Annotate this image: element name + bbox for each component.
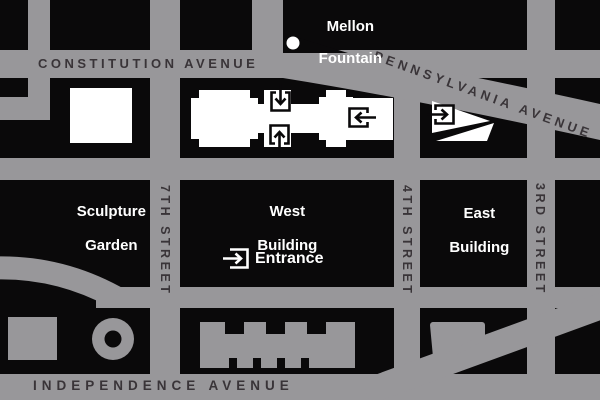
west-stub-road bbox=[0, 97, 50, 120]
arrow-up-into-box-icon bbox=[271, 126, 289, 153]
square-building-shape bbox=[8, 317, 57, 360]
curved-road bbox=[0, 268, 115, 297]
sixth-street-stub-road bbox=[252, 0, 283, 52]
round-building-shape bbox=[92, 318, 134, 360]
constitution-avenue-label: CONSTITUTION AVENUE bbox=[38, 56, 258, 71]
third-street-label: 3RD STREET bbox=[533, 183, 547, 296]
arrow-right-into-box-icon bbox=[427, 106, 454, 124]
entrance-label: Entrance bbox=[255, 250, 323, 267]
mellon-fountain-label: Mellon Fountain bbox=[287, 3, 397, 83]
sculpture-garden-pavilion bbox=[70, 88, 132, 143]
independence-avenue-label: INDEPENDENCE AVENUE bbox=[33, 378, 294, 393]
sculpture-garden-label: Sculpture Garden bbox=[43, 186, 163, 271]
east-building-label: East Building bbox=[411, 188, 531, 273]
madison-drive-road bbox=[0, 158, 600, 180]
arrow-down-into-box-icon bbox=[272, 84, 290, 111]
map: CONSTITUTION AVENUE PENNSYLVANIA AVENUE … bbox=[0, 0, 600, 400]
